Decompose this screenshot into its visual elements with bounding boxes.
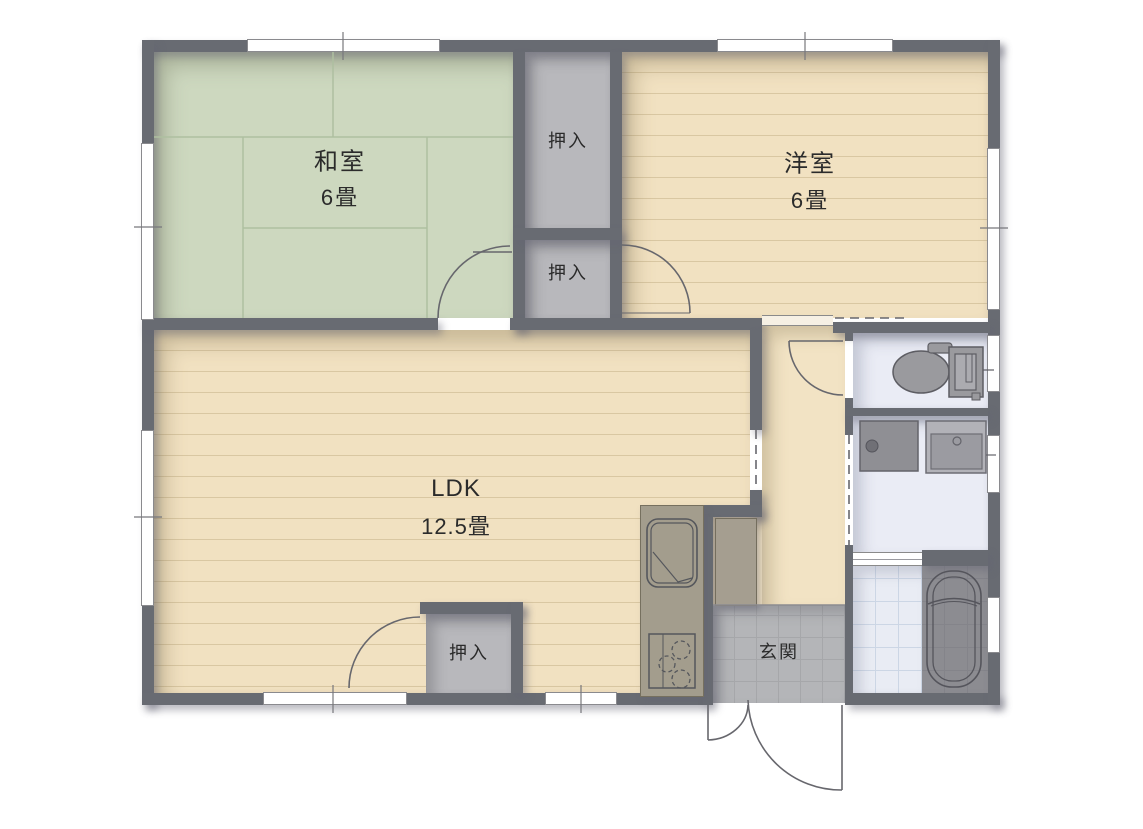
- ldk-closet-door-arc: [349, 617, 420, 688]
- entrance-door-arcs: [708, 700, 842, 790]
- vanity-sink-icon: [926, 421, 996, 473]
- kitchen-sink-icon: [647, 519, 697, 587]
- ldk-size: 12.5畳: [421, 509, 491, 541]
- closet-top-label: 押入: [548, 127, 588, 153]
- toilet-door-arc: [789, 341, 843, 395]
- closet-mid-label: 押入: [548, 259, 588, 285]
- washitsu-door-arc: [438, 246, 512, 318]
- floorplan-canvas: 和室 6畳 洋室 6畳 LDK 12.5畳 押入 押入 押入 玄関: [0, 0, 1143, 829]
- yoshitsu-size: 6畳: [791, 183, 829, 215]
- washitsu-label: 和室: [314, 142, 366, 177]
- washitsu-size: 6畳: [321, 180, 359, 212]
- genkan-label: 玄関: [759, 638, 799, 664]
- toilet-icon: [893, 343, 994, 400]
- bathtub-icon: [927, 571, 981, 687]
- linework-layer: [0, 0, 1143, 829]
- yoshitsu-label: 洋室: [784, 144, 836, 179]
- stove-icon: [649, 634, 695, 688]
- closet-ldk-label: 押入: [449, 639, 489, 665]
- washing-machine-pan-icon: [860, 421, 918, 471]
- ldk-label: LDK: [431, 475, 481, 503]
- yoshitsu-door-arc: [622, 245, 690, 313]
